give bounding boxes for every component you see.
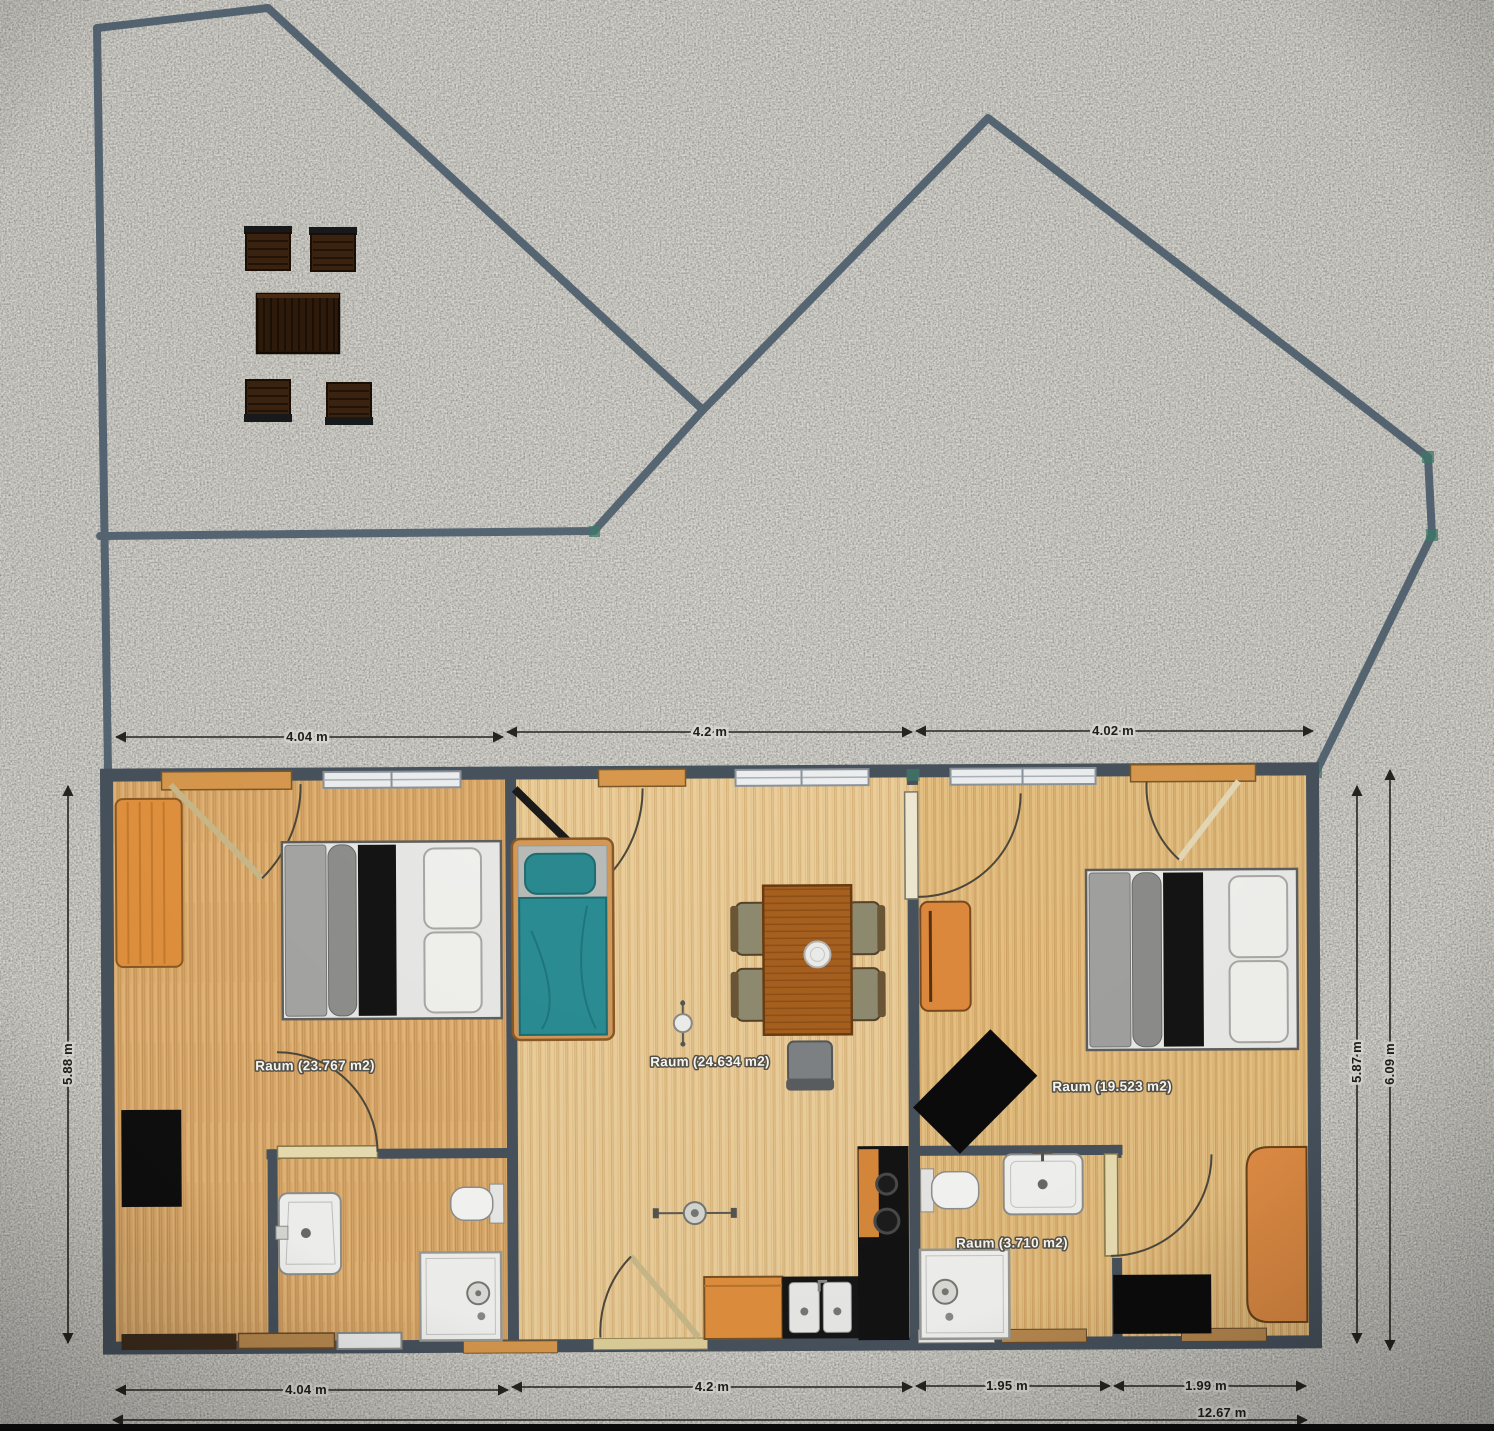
screen-bottom-bezel <box>0 1424 1494 1431</box>
vignette-overlay <box>0 0 1494 1431</box>
floor-plan-canvas: Raum (23.767 m2) Raum (24.634 m2) Raum (… <box>0 0 1494 1431</box>
